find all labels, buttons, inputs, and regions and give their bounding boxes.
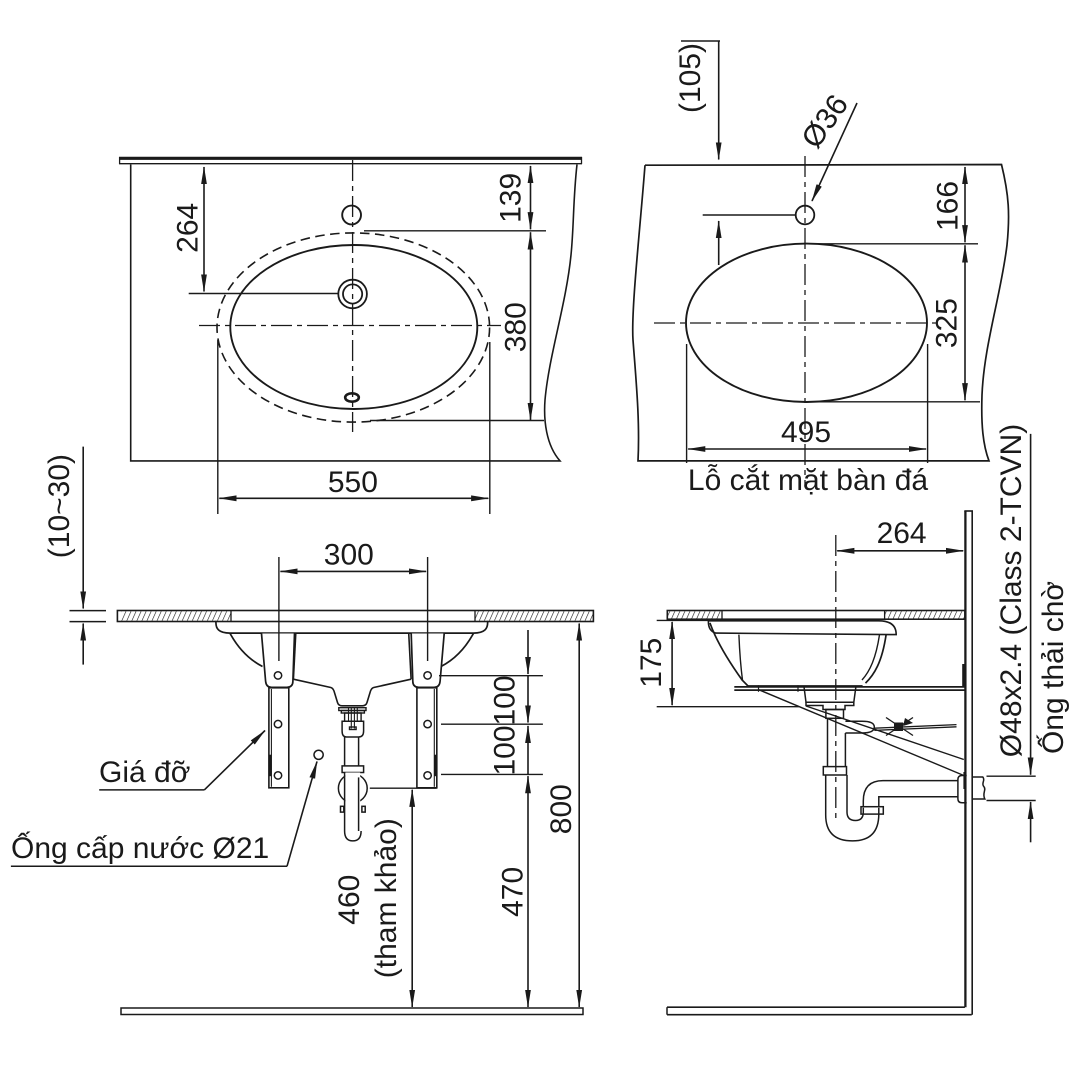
svg-text:380: 380 — [500, 302, 533, 352]
svg-text:(10~30): (10~30) — [43, 454, 76, 558]
svg-text:100: 100 — [489, 725, 522, 775]
svg-text:(105): (105) — [674, 43, 707, 113]
svg-text:495: 495 — [781, 416, 831, 449]
svg-text:300: 300 — [324, 538, 374, 571]
svg-text:175: 175 — [635, 638, 668, 688]
svg-text:550: 550 — [328, 466, 378, 499]
svg-text:100: 100 — [489, 675, 522, 725]
svg-text:Ø48x2.4 (Class 2-TCVN): Ø48x2.4 (Class 2-TCVN) — [995, 424, 1028, 757]
svg-text:800: 800 — [545, 784, 578, 834]
svg-text:166: 166 — [931, 181, 964, 231]
svg-text:460: 460 — [333, 875, 366, 925]
svg-text:264: 264 — [877, 517, 927, 550]
svg-text:Giá đỡ: Giá đỡ — [99, 756, 190, 789]
svg-text:470: 470 — [497, 867, 530, 917]
svg-text:Ống thải chờ: Ống thải chờ — [1036, 581, 1070, 754]
svg-text:(tham khảo): (tham khảo) — [370, 818, 403, 978]
svg-text:139: 139 — [495, 173, 528, 223]
svg-text:Lỗ cắt mặt bàn đá: Lỗ cắt mặt bàn đá — [688, 464, 928, 497]
svg-text:325: 325 — [930, 298, 963, 348]
svg-text:Ống cấp nước Ø21: Ống cấp nước Ø21 — [11, 831, 269, 865]
svg-text:264: 264 — [172, 203, 205, 253]
